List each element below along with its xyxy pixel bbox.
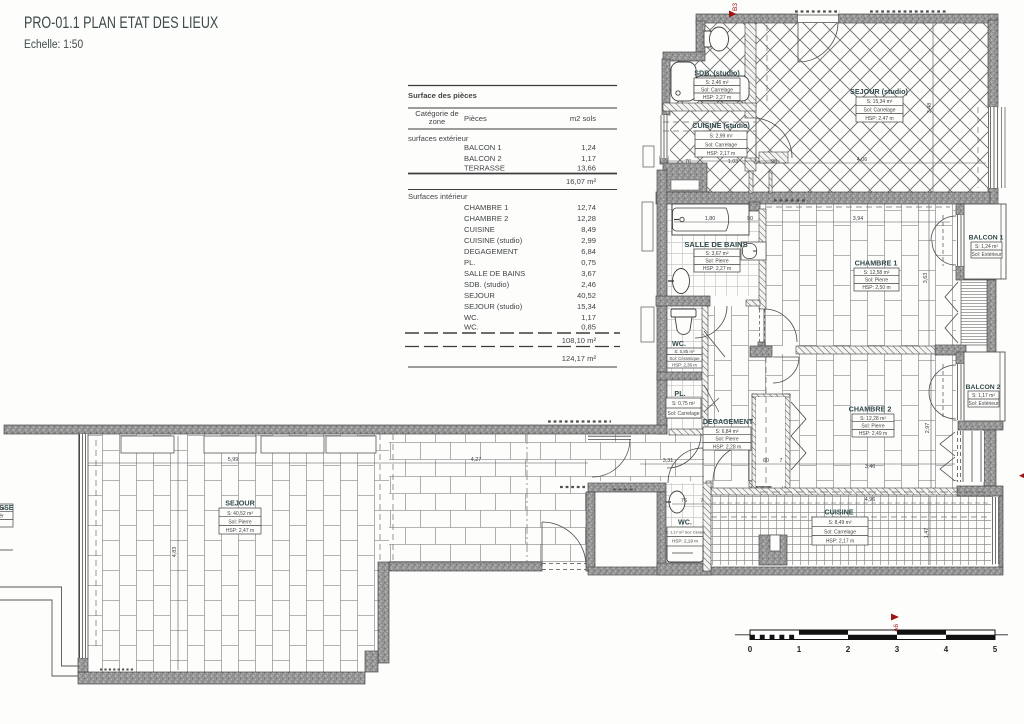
svg-text:3,31: 3,31	[663, 458, 674, 464]
svg-text:BALCON 2: BALCON 2	[464, 154, 502, 163]
svg-text:zone: zone	[429, 117, 445, 126]
svg-text:A6: A6	[893, 624, 900, 632]
svg-text:4,27: 4,27	[471, 457, 482, 463]
svg-text:HSP: 2,19 m: HSP: 2,19 m	[672, 539, 698, 544]
svg-text:B3: B3	[732, 3, 739, 11]
svg-text:CHAMBRE 1: CHAMBRE 1	[855, 259, 898, 268]
svg-text:S: 6,84 m²: S: 6,84 m²	[715, 429, 738, 435]
svg-text:12,74: 12,74	[577, 203, 596, 212]
svg-text:0,85: 0,85	[581, 323, 596, 332]
svg-text:S: 3,67 m²: S: 3,67 m²	[705, 251, 728, 257]
svg-text:S: 1,17 m²: S: 1,17 m²	[972, 393, 995, 399]
svg-text:BALCON 1: BALCON 1	[969, 235, 1004, 242]
svg-text:HSP: 2,47 m: HSP: 2,47 m	[865, 116, 893, 122]
svg-text:5,99: 5,99	[228, 457, 239, 463]
svg-text:2,46: 2,46	[581, 280, 596, 289]
svg-text:60: 60	[763, 458, 769, 464]
svg-text:15,34: 15,34	[577, 302, 596, 311]
svg-text:2,99: 2,99	[581, 236, 596, 245]
svg-text:1,17: 1,17	[581, 154, 596, 163]
svg-text:8,49: 8,49	[581, 225, 596, 234]
svg-text:Sol: Pierre: Sol: Pierre	[705, 259, 729, 265]
svg-text:4,83: 4,83	[172, 547, 178, 558]
svg-text:Echelle: 1:50: Echelle: 1:50	[24, 38, 83, 51]
svg-text:CHAMBRE 2: CHAMBRE 2	[464, 214, 508, 223]
svg-text:2,97: 2,97	[925, 423, 931, 434]
svg-text:HSP: 2,49 m: HSP: 2,49 m	[859, 431, 887, 437]
svg-text:PRO-01.1 PLAN ETAT DES LIEUX: PRO-01.1 PLAN ETAT DES LIEUX	[24, 14, 218, 32]
svg-text:HSP: 2,28 m: HSP: 2,28 m	[713, 444, 741, 450]
svg-text:Sol: Céramique: Sol: Céramique	[669, 356, 700, 361]
svg-text:S: 0,85 m²: S: 0,85 m²	[674, 349, 695, 354]
svg-text:3: 3	[895, 645, 900, 654]
svg-text:PL.: PL.	[464, 258, 475, 267]
svg-text:7: 7	[701, 498, 704, 504]
svg-text:Sol: Carrelage: Sol: Carrelage	[864, 108, 896, 114]
svg-text:S: 12,58 m²: S: 12,58 m²	[864, 270, 890, 276]
svg-text:5: 5	[993, 645, 998, 654]
svg-text:124,17 m²: 124,17 m²	[562, 354, 597, 363]
svg-text:S: 2,46 m²: S: 2,46 m²	[705, 80, 728, 86]
svg-text:BALCON 1: BALCON 1	[464, 143, 502, 152]
svg-text:Sol: Pierre: Sol: Pierre	[865, 278, 889, 284]
svg-text:0,75: 0,75	[581, 258, 596, 267]
svg-text:SEJOUR (studio): SEJOUR (studio)	[464, 302, 523, 311]
svg-text:S: 1,24 m²: S: 1,24 m²	[975, 244, 998, 250]
svg-text:1,17: 1,17	[581, 313, 596, 322]
svg-text:Sol: Pierre: Sol: Pierre	[861, 424, 885, 430]
svg-text:3,67: 3,67	[581, 269, 596, 278]
svg-text:Sol: Carrelage: Sol: Carrelage	[668, 411, 700, 417]
svg-text:76: 76	[685, 159, 691, 165]
svg-text:90: 90	[747, 216, 753, 222]
svg-text:CHAMBRE 1: CHAMBRE 1	[464, 203, 508, 212]
svg-text:SDB. (studio): SDB. (studio)	[694, 69, 740, 78]
svg-text:16,07 m²: 16,07 m²	[566, 177, 596, 186]
svg-text:DEGAGEMENT: DEGAGEMENT	[464, 247, 518, 256]
svg-text:Sol: Pierre: Sol: Pierre	[228, 520, 252, 526]
svg-text:1,80: 1,80	[705, 216, 716, 222]
svg-text:40,52: 40,52	[577, 291, 596, 300]
svg-text:surfaces extérieur: surfaces extérieur	[408, 134, 469, 143]
svg-text:SDB. (studio): SDB. (studio)	[464, 280, 510, 289]
svg-text:CUISINE: CUISINE	[464, 225, 495, 234]
svg-text:108,10 m²: 108,10 m²	[562, 336, 597, 345]
svg-text:BALCON 2: BALCON 2	[966, 384, 1001, 391]
svg-text:HSP: 2,36 m: HSP: 2,36 m	[672, 363, 697, 368]
svg-text:HSP: 2,50 m: HSP: 2,50 m	[862, 285, 890, 291]
svg-text:WC.: WC.	[464, 323, 479, 332]
svg-text:12,28: 12,28	[577, 214, 596, 223]
svg-text:Surface des pièces: Surface des pièces	[408, 91, 477, 100]
svg-text:4,06: 4,06	[857, 157, 868, 163]
svg-text:HSP: 2,27 m: HSP: 2,27 m	[703, 266, 731, 272]
svg-text:76: 76	[681, 498, 687, 504]
svg-text:Sol: Extér: Sol: Extér	[0, 514, 4, 520]
svg-text:S: 12,28 m²: S: 12,28 m²	[860, 416, 886, 422]
svg-text:WC.: WC.	[672, 339, 686, 348]
svg-text:SEJOUR (studio): SEJOUR (studio)	[850, 87, 909, 96]
svg-text:PL.: PL.	[674, 389, 685, 398]
svg-text:13,66: 13,66	[577, 164, 596, 173]
svg-text:7: 7	[780, 458, 783, 464]
svg-text:6,84: 6,84	[581, 247, 596, 256]
svg-text:98: 98	[771, 159, 777, 165]
svg-text:S: 2,99 m²: S: 2,99 m²	[709, 134, 732, 140]
svg-text:1,24: 1,24	[581, 143, 596, 152]
svg-text:S: 0,75 m²: S: 0,75 m²	[672, 401, 695, 407]
svg-text:2: 2	[846, 645, 851, 654]
svg-text:7: 7	[754, 159, 757, 165]
svg-text:HSP: 2,17 m: HSP: 2,17 m	[826, 539, 854, 545]
svg-text:S: 8,49 m²: S: 8,49 m²	[828, 520, 851, 526]
svg-text:Surfaces intérieur: Surfaces intérieur	[408, 192, 468, 201]
svg-text:CUISINE (studio): CUISINE (studio)	[692, 121, 750, 130]
svg-text:Sol: Carrelage: Sol: Carrelage	[701, 87, 733, 93]
svg-text:SEJOUR: SEJOUR	[225, 499, 255, 508]
svg-text:S: 1,17 m² Sol: Céram: S: 1,17 m² Sol: Céram	[665, 530, 705, 535]
svg-text:0: 0	[748, 645, 753, 654]
svg-text:WC.: WC.	[678, 518, 692, 527]
svg-text:4: 4	[944, 645, 949, 654]
svg-text:3,48: 3,48	[927, 103, 933, 114]
svg-text:CUISINE (studio): CUISINE (studio)	[464, 236, 523, 245]
svg-text:Sol: Carrelage: Sol: Carrelage	[705, 142, 737, 148]
svg-text:Sol: Pierre: Sol: Pierre	[715, 437, 739, 443]
svg-text:S: 40,52 m²: S: 40,52 m²	[227, 511, 253, 517]
svg-text:1: 1	[797, 645, 802, 654]
svg-text:3,94: 3,94	[853, 216, 864, 222]
svg-text:S: 13,66 m²: S: 13,66 m²	[0, 506, 6, 512]
svg-text:HSP: 2,47 m: HSP: 2,47 m	[226, 528, 254, 534]
svg-text:Sol: Carrelage: Sol: Carrelage	[824, 529, 856, 535]
svg-text:HSP: 2,27 m: HSP: 2,27 m	[703, 95, 731, 101]
svg-text:DEGAGEMENT: DEGAGEMENT	[703, 419, 754, 426]
svg-text:CUISINE: CUISINE	[824, 508, 853, 517]
svg-text:Pièces: Pièces	[464, 114, 487, 123]
svg-text:3,63: 3,63	[923, 273, 929, 284]
svg-text:1,03: 1,03	[728, 159, 739, 165]
svg-text:SEJOUR: SEJOUR	[464, 291, 495, 300]
svg-text:HSP: 2,17 m: HSP: 2,17 m	[707, 151, 735, 157]
svg-text:4,96: 4,96	[865, 497, 876, 503]
svg-text:m2 sols: m2 sols	[570, 114, 596, 123]
svg-text:S: 15,34 m²: S: 15,34 m²	[867, 99, 893, 105]
svg-text:Sol: Extérieur: Sol: Extérieur	[971, 252, 1001, 258]
svg-text:Sol: Extérieur: Sol: Extérieur	[968, 401, 998, 407]
svg-text:TERRASSE: TERRASSE	[464, 164, 505, 173]
svg-text:SALLE DE BAINS: SALLE DE BAINS	[464, 269, 525, 278]
svg-text:3,46: 3,46	[865, 464, 876, 470]
svg-text:SALLE DE BAINS: SALLE DE BAINS	[684, 240, 747, 249]
svg-text:WC.: WC.	[464, 313, 479, 322]
svg-text:CHAMBRE 2: CHAMBRE 2	[849, 405, 892, 414]
svg-text:1,47: 1,47	[924, 528, 930, 539]
